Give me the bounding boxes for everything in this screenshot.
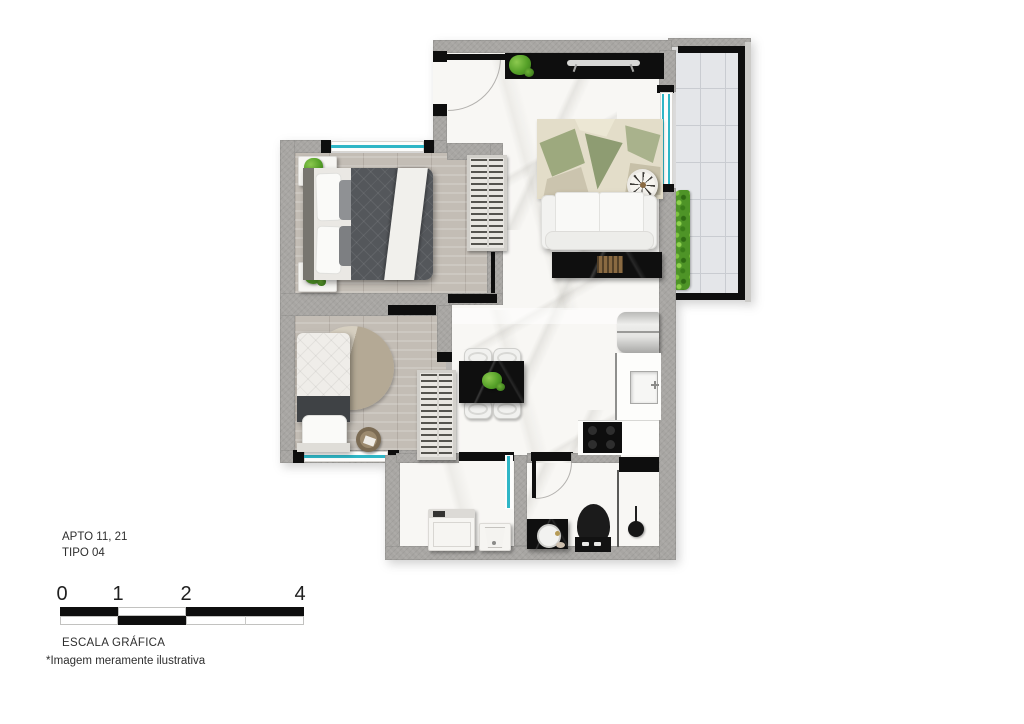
apartment-label: APTO 11, 21 xyxy=(62,530,127,544)
scale-segment xyxy=(118,616,186,625)
entry-jamb-bottom xyxy=(433,104,447,116)
laundry-bath-divider xyxy=(514,455,527,546)
living-top-wall xyxy=(433,40,672,53)
burner-icon xyxy=(588,426,597,435)
shower-head xyxy=(628,521,644,537)
washing-machine xyxy=(428,509,475,551)
bedroom1-wardrobe xyxy=(467,155,507,251)
entry-jamb-top xyxy=(433,51,447,62)
balcony-rail-right xyxy=(738,46,745,299)
laundry-left-wall xyxy=(385,455,400,560)
scale-segment xyxy=(118,607,186,616)
right-outer-wall xyxy=(659,188,676,560)
scale-segment xyxy=(60,616,118,625)
laundry-sliding-door xyxy=(507,456,510,508)
bed-headboard xyxy=(303,168,314,280)
cooktop xyxy=(583,422,622,453)
bedroom2-window-glass xyxy=(304,455,388,458)
balcony-rail-bottom xyxy=(674,293,745,300)
dining-centerpiece-plant xyxy=(482,372,502,389)
entry-door-leaf xyxy=(447,54,505,60)
bedroom1-top-wall-right xyxy=(434,140,447,153)
shower-partition xyxy=(617,470,619,547)
toilet-tank xyxy=(575,537,611,552)
toilet-button xyxy=(594,542,601,546)
laundry-tank-sink xyxy=(479,523,511,551)
burner-icon xyxy=(606,426,615,435)
scale-segment-divider xyxy=(245,616,246,625)
scale-tick-label: 4 xyxy=(294,584,305,604)
bedroom2-wardrobe xyxy=(417,370,456,460)
burner-icon xyxy=(606,440,615,449)
entry-threshold xyxy=(433,62,447,104)
sofa-console-table xyxy=(552,252,662,278)
bedroom2-door-lintel xyxy=(388,305,436,315)
bed-base xyxy=(297,443,350,452)
sofa-backrest xyxy=(545,231,654,250)
scale-tick-label: 2 xyxy=(180,584,191,604)
kitchen-sink xyxy=(630,371,658,404)
scale-tick-label: 0 xyxy=(56,584,67,604)
toilet-button xyxy=(582,542,589,546)
toilet xyxy=(575,504,611,552)
floorplan-page: { "header": { "apartment": "APTO 11, 21"… xyxy=(0,0,1024,724)
sofa-cushion xyxy=(599,192,644,236)
washer-knob xyxy=(433,511,445,517)
faucet-icon xyxy=(654,381,656,389)
tank-basin xyxy=(484,527,506,548)
washer-lid xyxy=(433,522,471,547)
console-decor xyxy=(597,256,623,273)
fridge-divider xyxy=(617,331,659,333)
scale-segment xyxy=(186,607,304,616)
console-plant xyxy=(509,55,531,75)
scale-segment xyxy=(60,607,118,616)
balcony-door-glass-b xyxy=(668,94,670,184)
single-bed xyxy=(297,333,350,452)
balcony-rail-top xyxy=(678,46,745,53)
bathroom-vanity xyxy=(527,519,568,549)
pouf-table xyxy=(356,427,381,452)
bathroom-door-lintel xyxy=(531,452,573,461)
vanity-soap xyxy=(556,542,565,548)
bedroom2-door-jamb xyxy=(437,352,452,362)
balcony-outer-edge xyxy=(745,42,751,302)
burner-icon xyxy=(588,440,597,449)
refrigerator xyxy=(617,312,659,353)
bed-quilt xyxy=(297,333,350,400)
bedroom1-door-lintel xyxy=(448,294,497,303)
bedroom1-window-jamb-left xyxy=(321,140,331,153)
sofa-cushion xyxy=(555,192,600,236)
tank-drain xyxy=(492,541,496,545)
bedroom1-window-glass xyxy=(331,145,424,148)
scale-caption: ESCALA GRÁFICA xyxy=(62,636,165,650)
disclaimer-note: *Imagem meramente ilustrativa xyxy=(46,654,205,668)
bedroom1-window-jamb-right xyxy=(424,140,434,153)
scale-tick-label: 1 xyxy=(112,584,123,604)
sofa xyxy=(541,191,656,249)
double-bed xyxy=(303,168,433,280)
bathroom-door-leaf xyxy=(532,461,536,498)
vanity-tap xyxy=(555,531,560,536)
apartment-type-label: TIPO 04 xyxy=(62,546,105,560)
